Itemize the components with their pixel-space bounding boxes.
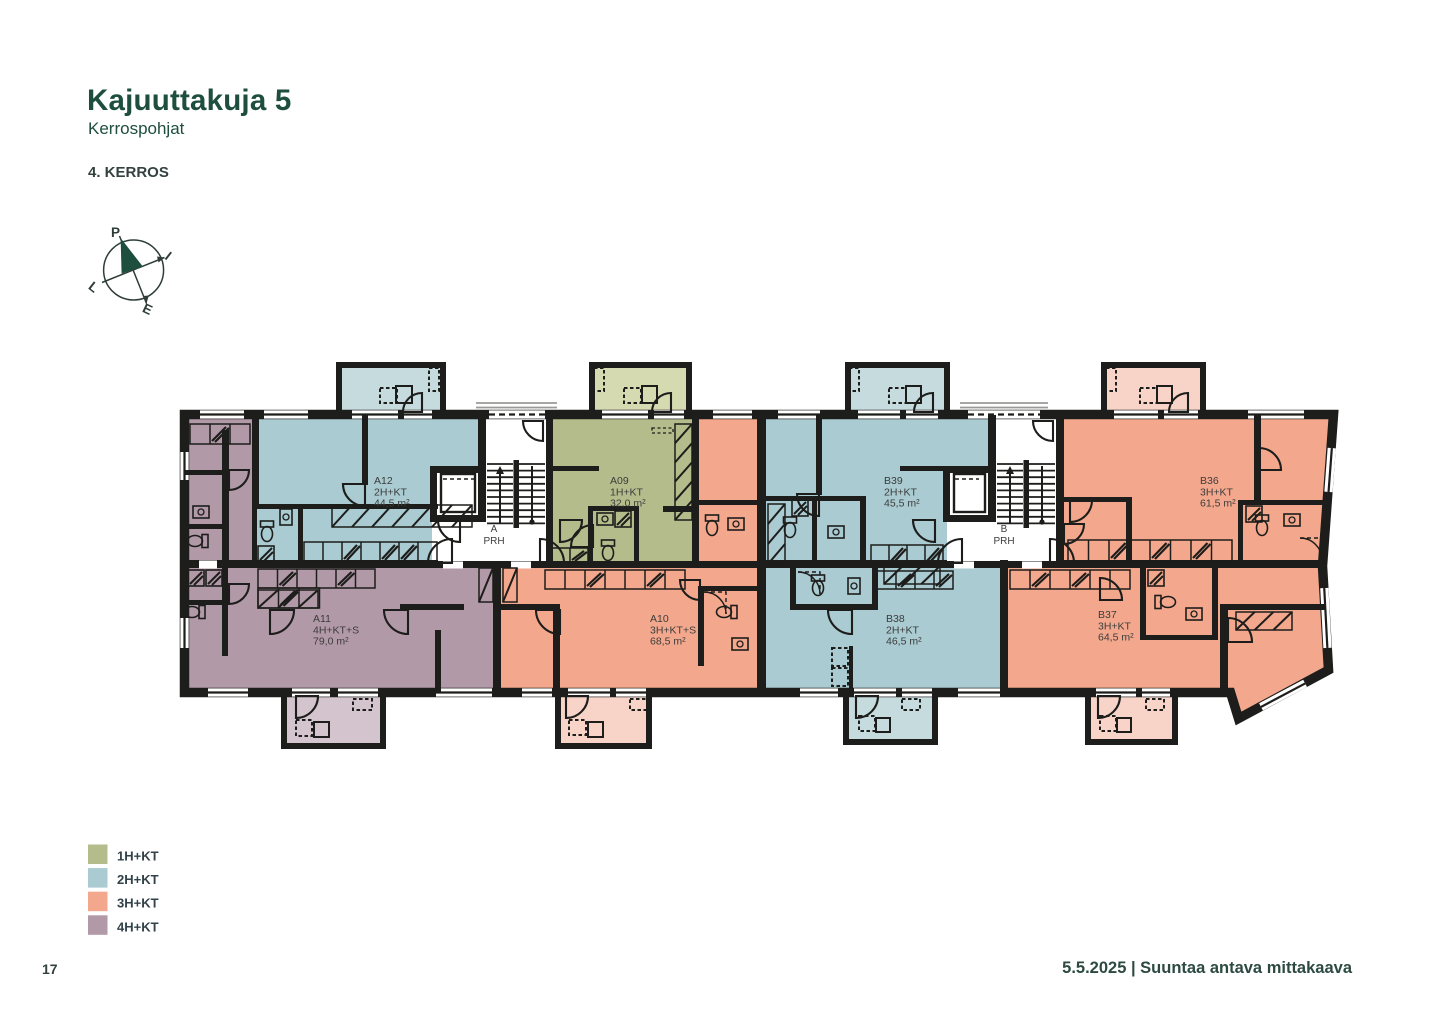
svg-text:I: I	[162, 249, 174, 263]
svg-text:61,5 m²: 61,5 m²	[1200, 498, 1236, 510]
svg-text:B38: B38	[886, 613, 905, 625]
svg-text:B36: B36	[1200, 475, 1219, 487]
svg-text:2H+KT: 2H+KT	[886, 624, 920, 636]
svg-text:A: A	[491, 524, 498, 535]
svg-text:4H+KT: 4H+KT	[117, 919, 159, 934]
svg-text:46,5 m²: 46,5 m²	[886, 636, 922, 648]
svg-text:A11: A11	[313, 613, 331, 625]
svg-text:2H+KT: 2H+KT	[884, 486, 918, 498]
svg-text:45,5 m²: 45,5 m²	[884, 498, 920, 510]
svg-text:A09: A09	[610, 475, 629, 487]
svg-text:2H+KT: 2H+KT	[374, 486, 408, 498]
svg-text:1H+KT: 1H+KT	[610, 486, 644, 498]
svg-text:PRH: PRH	[483, 536, 504, 547]
svg-text:PRH: PRH	[993, 536, 1014, 547]
svg-text:32,0 m²: 32,0 m²	[610, 498, 646, 510]
svg-text:B: B	[1001, 524, 1008, 535]
svg-text:E: E	[140, 301, 155, 318]
svg-text:79,0 m²: 79,0 m²	[313, 636, 349, 648]
svg-text:L: L	[86, 279, 102, 296]
svg-text:2H+KT: 2H+KT	[117, 872, 159, 887]
svg-text:B37: B37	[1098, 609, 1117, 621]
svg-text:A10: A10	[650, 613, 669, 625]
svg-text:3H+KT: 3H+KT	[1200, 486, 1234, 498]
svg-text:P: P	[111, 225, 120, 240]
svg-text:3H+KT+S: 3H+KT+S	[650, 624, 696, 636]
svg-text:64,5 m²: 64,5 m²	[1098, 632, 1134, 644]
svg-text:1H+KT: 1H+KT	[117, 849, 159, 864]
svg-text:44,5 m²: 44,5 m²	[374, 498, 410, 510]
svg-text:A12: A12	[374, 475, 393, 487]
svg-text:68,5 m²: 68,5 m²	[650, 636, 686, 648]
svg-text:3H+KT: 3H+KT	[117, 896, 159, 911]
svg-text:B39: B39	[884, 475, 903, 487]
svg-text:3H+KT: 3H+KT	[1098, 620, 1132, 632]
svg-text:4H+KT+S: 4H+KT+S	[313, 624, 359, 636]
